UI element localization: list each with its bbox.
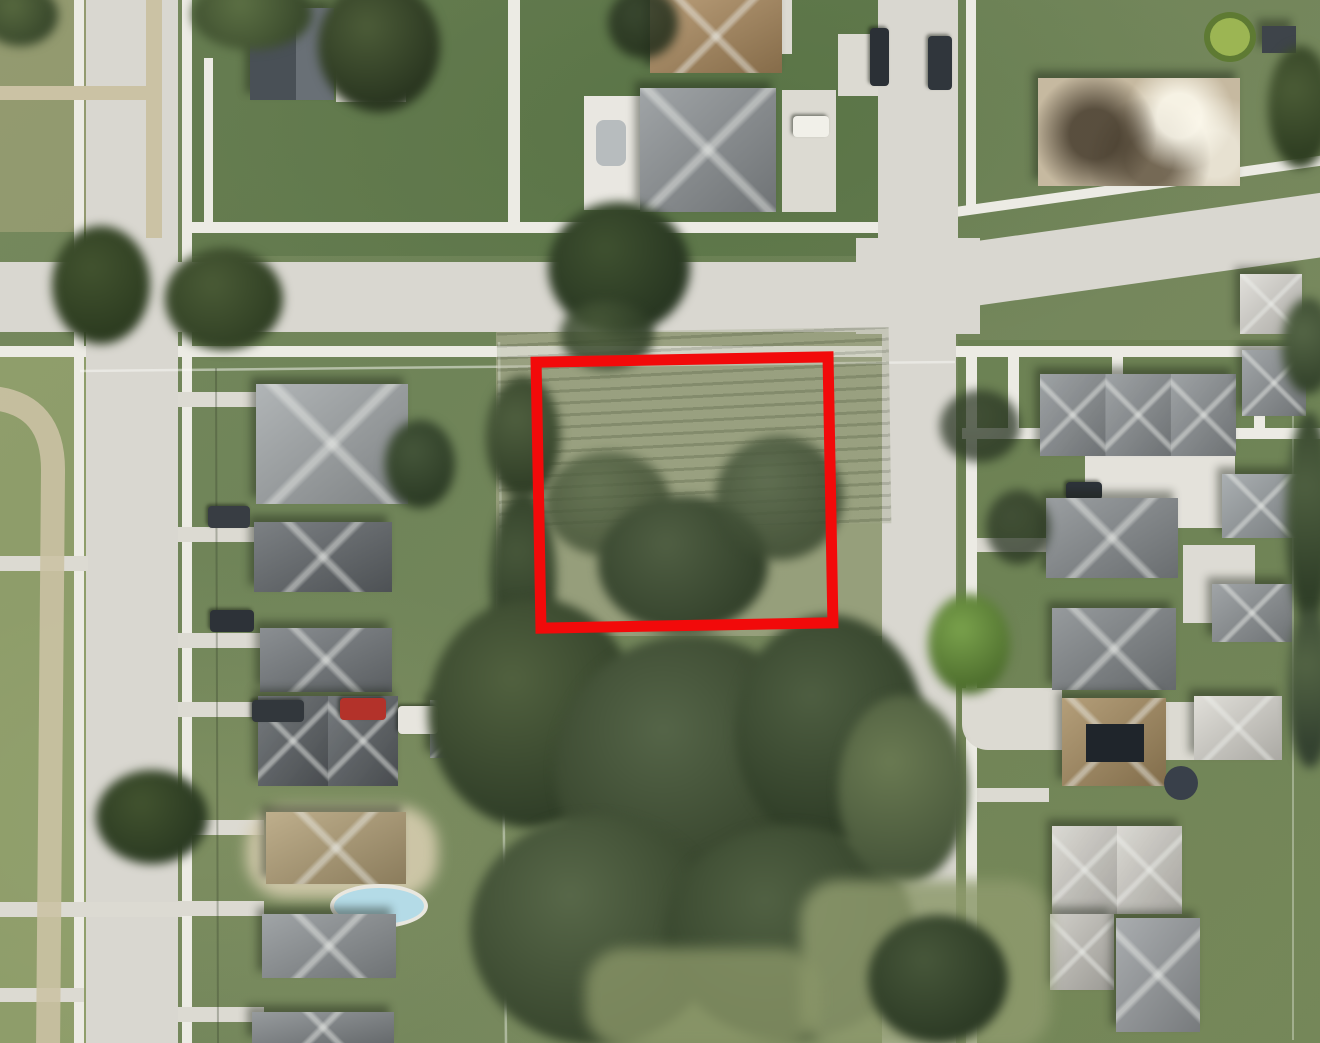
parcel-outline[interactable] (530, 351, 838, 634)
house-roof-large-gray (640, 88, 776, 212)
tree-canopy (1268, 46, 1320, 168)
driveway-left-2 (178, 527, 264, 542)
walk-west-3 (0, 988, 84, 1002)
bright-tree-canopy (928, 594, 1010, 694)
garage-roof-white (1194, 696, 1282, 760)
house-roof (262, 914, 396, 978)
tree-shadow (986, 490, 1050, 564)
house-roof (1052, 608, 1176, 690)
tree-canopy (96, 770, 208, 864)
dirt-path-vertical-top-left (146, 0, 162, 238)
sidewalk-vertical-west2 (182, 0, 192, 1043)
apron-east-curve (962, 688, 1062, 750)
house-roof-triple (1040, 374, 1236, 456)
tree-canopy (165, 248, 283, 350)
grass-clearing (585, 948, 820, 1043)
parked-car-dark (208, 506, 250, 528)
driveway-east-3 (977, 788, 1049, 802)
house-roof (256, 384, 408, 504)
round-pond (1204, 12, 1256, 62)
aerial-map[interactable] (0, 0, 1320, 1043)
parked-car-dark (252, 700, 304, 722)
walk-west-1 (0, 556, 88, 571)
house-roof-white (1052, 826, 1182, 914)
woods-canopy-light (838, 695, 968, 885)
driveway-left-1 (178, 392, 264, 407)
house-roof (254, 522, 392, 592)
parked-car-dark (928, 36, 952, 90)
house-roof-tan (266, 812, 406, 884)
garage-roof (1212, 584, 1292, 642)
round-pool-dark (1164, 766, 1198, 800)
parked-car-dark (870, 28, 889, 86)
tree-canopy (868, 915, 1008, 1043)
sidewalk-top-right-block (966, 0, 976, 212)
solar-panel (1086, 724, 1144, 762)
sidewalk-north-of-road (192, 222, 878, 233)
house-roof (252, 1012, 394, 1043)
sidewalk-vertical-west1 (74, 0, 84, 1043)
dirt-path-horizontal-top-left (0, 86, 152, 100)
apron-top-center-east (782, 90, 836, 212)
house-roof (260, 628, 392, 692)
sidewalk-top-left (204, 58, 213, 224)
tree-canopy (385, 420, 455, 508)
parked-car-white (793, 116, 829, 137)
parked-car-red (340, 698, 386, 720)
road-vertical-left (86, 0, 178, 1043)
house-roof (1046, 498, 1178, 578)
driveway-left-6 (178, 901, 264, 916)
tree-canopy (52, 226, 150, 344)
walk-west-2 (0, 902, 182, 917)
house-roof (1050, 914, 1114, 990)
house-roof-ruined (1038, 78, 1240, 186)
tree-line-right-edge (1288, 608, 1320, 768)
tree-canopy (0, 0, 58, 46)
parked-car-dark (210, 610, 254, 632)
house-roof (1116, 918, 1200, 1032)
hot-tub (596, 120, 626, 166)
tree-shadow (940, 390, 1020, 462)
driveway-left-3 (178, 633, 264, 648)
driveway-tan-house (1166, 702, 1194, 760)
sidewalk-top-center (508, 0, 520, 224)
